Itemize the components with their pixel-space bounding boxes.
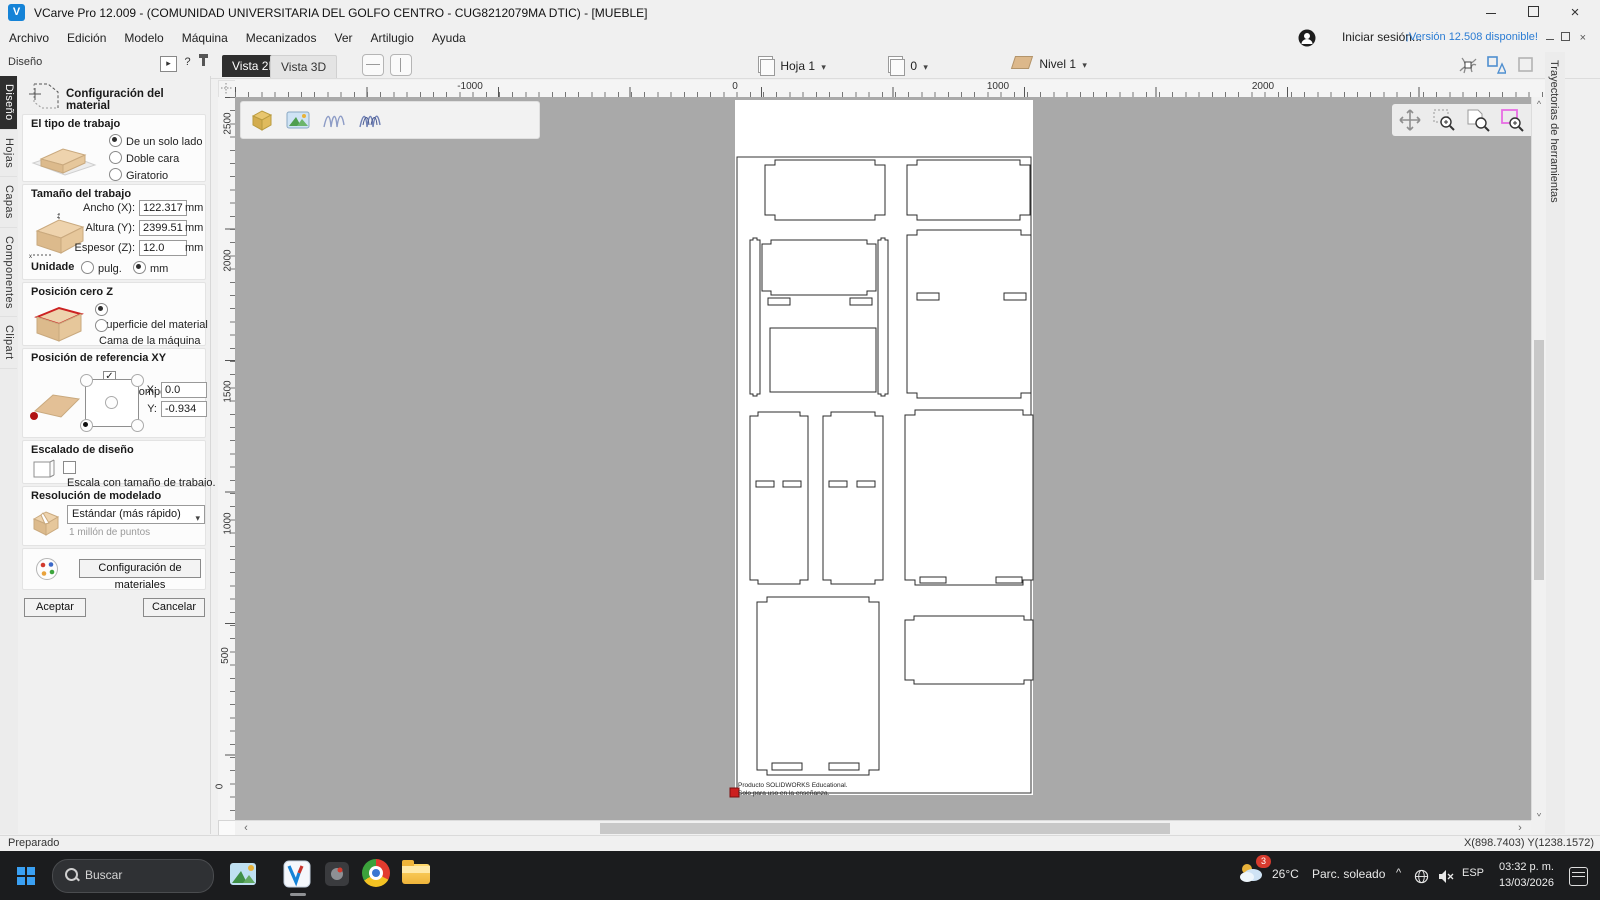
cnc-part-slot (857, 481, 875, 487)
cnc-part-slot (772, 763, 802, 770)
taskbar-vcarve-app[interactable] (282, 859, 314, 891)
datum-bottom-left[interactable] (80, 419, 93, 432)
snap-geometry-icon[interactable] (1486, 55, 1506, 75)
material-block-icon[interactable] (249, 107, 275, 133)
menu-ver[interactable]: Ver (325, 26, 361, 50)
menu-modelo[interactable]: Modelo (115, 26, 172, 50)
cnc-part-slot (829, 763, 859, 770)
resolution-note: 1 millón de puntos (69, 527, 150, 538)
cnc-part-slot (920, 577, 946, 583)
vcarve-app-icon: V (8, 4, 25, 21)
design-dock-header: Diseño ▸ ? (0, 52, 210, 77)
cnc-part-slot (917, 293, 939, 300)
datum-bottom-right[interactable] (131, 419, 144, 432)
design-scaling-section: Escalado de diseño Escala con tamaño de … (22, 440, 206, 484)
radio-double-sided[interactable]: Doble cara (109, 151, 179, 165)
page-icon (888, 56, 903, 73)
solidworks-note-2: Solo para uso en la enseñanza. (738, 790, 830, 797)
radio-mm[interactable]: mm (133, 261, 168, 275)
version-available-link[interactable]: ¡Versión 12.508 disponible! (1405, 31, 1538, 43)
chevron-down-icon: ▾ (1082, 60, 1087, 70)
menu-bar: ArchivoEdiciónModeloMáquinaMecanizadosVe… (0, 26, 1600, 52)
material-settings-section: Configuración de materiales (22, 548, 206, 590)
radio-icon (109, 134, 122, 147)
drawing-canvas[interactable]: Producto SOLIDWORKS Educational. Solo pa… (235, 97, 1531, 820)
help-icon[interactable]: ? (180, 56, 195, 70)
chevron-down-icon: ▾ (195, 510, 200, 527)
language-indicator[interactable]: ESP (1462, 867, 1484, 879)
scale-icon (33, 459, 55, 479)
cnc-part-outline[interactable] (905, 410, 1033, 585)
radio-icon (109, 151, 122, 164)
side-tab-componentes[interactable]: Componentes (0, 228, 17, 318)
radio-single-sided[interactable]: De un solo lado (109, 134, 202, 148)
side-tab-clipart[interactable]: Clipart (0, 317, 17, 369)
radio-icon (95, 319, 108, 332)
chevron-down-icon: ▾ (923, 62, 928, 72)
network-icon[interactable] (1414, 869, 1429, 884)
weather-condition[interactable]: Parc. soleado (1312, 867, 1385, 881)
minimize-button[interactable] (1474, 0, 1508, 26)
search-box[interactable]: Buscar (52, 859, 214, 893)
cnc-part-outline[interactable] (757, 597, 879, 775)
menu-archivo[interactable]: Archivo (0, 26, 58, 50)
zero-dropdown[interactable]: 0 ▾ (888, 56, 928, 74)
cnc-part-outline[interactable] (823, 412, 883, 584)
windows-taskbar: Buscar (0, 851, 1600, 900)
ruler-left-label: 1000 (223, 512, 234, 534)
menu-mecanizados[interactable]: Mecanizados (237, 26, 326, 50)
height-y-field[interactable]: 2399.51 (139, 220, 187, 236)
z-zero-section: Posición cero Z Superficie del material … (22, 282, 206, 346)
collapse-panel-icon[interactable]: ▸ (160, 56, 177, 72)
xy-datum-material-icon (27, 385, 85, 425)
resolution-icon (31, 507, 61, 537)
datum-center[interactable] (105, 396, 118, 409)
radio-icon (133, 261, 146, 274)
ruler-top-label: 1000 (987, 81, 1009, 92)
window-title: VCarve Pro 12.009 - (COMUNIDAD UNIVERSIT… (34, 6, 647, 20)
menu-maquina[interactable]: Máquina (173, 26, 237, 50)
radio-machine-bed[interactable]: Cama de la máquina (95, 319, 205, 347)
vertical-ruler: 25002000150010005000 (218, 97, 236, 820)
restore-button[interactable] (1516, 0, 1550, 26)
tab-trayectorias[interactable]: Trayectorias de herramientas (1545, 52, 1563, 211)
image-icon[interactable] (285, 107, 311, 133)
radio-rotary[interactable]: Giratorio (109, 168, 168, 182)
side-tab-diseno[interactable]: Diseño (0, 76, 17, 130)
user-icon (1298, 29, 1316, 47)
pan-tool-icon[interactable] (1398, 108, 1422, 132)
material-settings-button[interactable]: Configuración de materiales (79, 559, 201, 578)
doc-close-button[interactable]: × (1580, 32, 1586, 44)
canvas-toolbar (240, 101, 540, 139)
side-tab-capas[interactable]: Capas (0, 177, 17, 228)
scroll-left-arrow[interactable]: ‹ (239, 821, 253, 836)
scroll-right-arrow[interactable]: › (1513, 821, 1527, 836)
resolution-select[interactable]: Estándar (más rápido) ▾ (67, 505, 205, 524)
start-button[interactable] (10, 859, 42, 891)
speaker-muted-icon[interactable] (1438, 869, 1454, 884)
notification-center-icon[interactable] (1569, 867, 1588, 886)
chevron-down-icon: ▾ (821, 62, 826, 72)
vertical-scroll-thumb[interactable] (1534, 340, 1544, 580)
split-vertical-icon[interactable] (390, 54, 412, 76)
snap-grid-icon[interactable] (1516, 55, 1536, 75)
taskbar-chrome[interactable] (362, 859, 394, 891)
search-icon (65, 868, 78, 881)
scroll-up-arrow[interactable]: ^ (1532, 99, 1546, 109)
single-sided-icon (31, 137, 97, 177)
date: 13/03/2026 (1499, 875, 1554, 891)
sheet-icon (758, 56, 773, 73)
xy-datum-section: Posición de referencia XY ✓Usar compensa… (22, 348, 206, 438)
tab-vista-3d[interactable]: Vista 3D (270, 55, 337, 78)
thickness-z-field[interactable]: 12.0 (139, 240, 187, 256)
taskbar-photos-app[interactable] (228, 859, 260, 891)
cnc-part-slot (850, 298, 872, 305)
ruler-top-label: 2000 (1252, 81, 1274, 92)
horizontal-scroll-thumb[interactable] (600, 823, 1170, 834)
panel-title: Configuración del material (66, 88, 210, 112)
datum-x-field[interactable]: 0.0 (161, 382, 207, 398)
z-zero-surface-icon (31, 303, 87, 345)
taskbar-file-explorer[interactable] (402, 859, 434, 891)
material-setup-icon (28, 80, 64, 112)
cnc-part-slot (783, 481, 801, 487)
toolpath-simulate-icon[interactable] (357, 107, 383, 133)
radio-inches[interactable]: pulg. (81, 261, 122, 275)
cnc-part-outline[interactable] (907, 160, 1030, 220)
accept-button[interactable]: Aceptar (24, 598, 86, 617)
cnc-part-slot (768, 298, 790, 305)
cnc-part-slot (996, 577, 1022, 583)
level-dropdown[interactable]: Nivel 1 ▾ (1013, 56, 1087, 74)
view-toolbar: Vista 2D Vista 3D Hoja 1 ▾ 0 ▾ Nivel 1 ▾ (210, 52, 1600, 79)
doc-restore-button[interactable] (1561, 32, 1570, 44)
time: 03:32 p. m. (1499, 859, 1554, 875)
sheet-dropdown[interactable]: Hoja 1 ▾ (758, 56, 826, 74)
checkbox-icon (63, 461, 76, 474)
sheet-drawing[interactable]: Producto SOLIDWORKS Educational. Solo pa… (235, 97, 1531, 820)
scroll-down-arrow[interactable]: ^ (1532, 808, 1546, 818)
cnc-part-outline[interactable] (905, 616, 1033, 684)
taskbar-dark-app[interactable] (322, 859, 354, 891)
tray-chevron-up[interactable]: ^ (1396, 867, 1401, 879)
ruler-left-label: 2500 (223, 112, 234, 134)
width-x-field[interactable]: 122.317 (139, 200, 187, 216)
radio-icon (109, 168, 122, 181)
material-setup-panel: Configuración del material El tipo de tr… (18, 76, 211, 834)
radio-icon (81, 261, 94, 274)
cnc-part-outline[interactable] (878, 238, 888, 396)
job-size-section: Tamaño del trabajo xz Ancho (X): 122.317… (22, 184, 206, 280)
ruler-top-label: 0 (732, 81, 738, 92)
svg-text:z: z (57, 214, 60, 220)
solidworks-note-1: Producto SOLIDWORKS Educational. (738, 782, 848, 789)
cnc-part-outline[interactable] (907, 230, 1031, 398)
dock-title: Diseño (8, 56, 42, 68)
split-horizontal-icon[interactable] (362, 54, 384, 76)
cursor-coordinates: X(898.7403) Y(1238.1572) (1464, 837, 1594, 849)
right-tab-strip: Trayectorias de herramientas (1545, 52, 1565, 834)
level-icon (1011, 56, 1033, 69)
left-tab-strip: DiseñoHojasCapasComponentesClipart (0, 76, 18, 834)
cnc-part-outline[interactable] (762, 240, 876, 295)
datum-top-left[interactable] (80, 374, 93, 387)
ruler-top-label: -1000 (457, 81, 483, 92)
zoom-box-icon[interactable] (1500, 108, 1524, 132)
svg-text:x: x (29, 254, 32, 259)
status-text: Preparado (8, 837, 59, 849)
side-tab-hojas[interactable]: Hojas (0, 130, 17, 177)
cnc-part-slot (829, 481, 847, 487)
cnc-part-slot (1004, 293, 1026, 300)
doc-minimize-button[interactable] (1546, 32, 1554, 44)
ruler-left-label: 1500 (223, 380, 234, 402)
menu-edicion[interactable]: Edición (58, 26, 115, 50)
menu-ayuda[interactable]: Ayuda (423, 26, 475, 50)
zoom-fit-icon[interactable] (1466, 108, 1490, 132)
modeling-resolution-section: Resolución de modelado Estándar (más ráp… (22, 486, 206, 546)
job-type-section: El tipo de trabajo De un solo lado Doble… (22, 114, 206, 182)
units-label: Unidade (31, 261, 74, 273)
title-bar: V VCarve Pro 12.009 - (COMUNIDAD UNIVERS… (0, 0, 1600, 26)
clock[interactable]: 03:32 p. m. 13/03/2026 (1499, 859, 1554, 891)
cnc-part-slot (756, 481, 774, 487)
cnc-part-outline[interactable] (750, 412, 808, 584)
ruler-left-label: 0 (214, 784, 225, 790)
weather-temp[interactable]: 26°C (1272, 867, 1299, 881)
ruler-left-label: 500 (220, 647, 231, 664)
cnc-part-outline[interactable] (765, 160, 885, 220)
radio-icon (95, 303, 108, 316)
pin-icon[interactable] (196, 56, 211, 70)
menu-artilugio[interactable]: Artilugio (362, 26, 423, 50)
snap-nodes-icon[interactable] (1458, 55, 1478, 75)
datum-y-field[interactable]: -0.934 (161, 401, 207, 417)
vcarve-window: V VCarve Pro 12.009 - (COMUNIDAD UNIVERS… (0, 0, 1600, 900)
scale-with-job-checkbox[interactable]: Escala con tamaño de trabajo. (63, 461, 216, 489)
cnc-part-slot (770, 328, 876, 392)
toolpath-preview-icon[interactable] (321, 107, 347, 133)
notification-badge: 3 (1256, 855, 1271, 868)
close-button[interactable]: × (1558, 0, 1592, 26)
vertical-scrollbar[interactable]: ^ ^ (1531, 97, 1546, 820)
zoom-selection-icon[interactable] (1432, 108, 1456, 132)
horizontal-scrollbar[interactable]: ‹ › (235, 820, 1531, 836)
status-bar: Preparado X(898.7403) Y(1238.1572) (0, 835, 1600, 852)
cnc-part-outline[interactable] (750, 238, 760, 396)
horizontal-ruler: -1000010002000 (235, 80, 1545, 98)
ruler-left-label: 2000 (223, 249, 234, 271)
weather-icon[interactable]: 3 (1238, 859, 1266, 891)
zoom-toolbar (1392, 104, 1534, 136)
cancel-button[interactable]: Cancelar (143, 598, 205, 617)
palette-icon (35, 557, 59, 581)
